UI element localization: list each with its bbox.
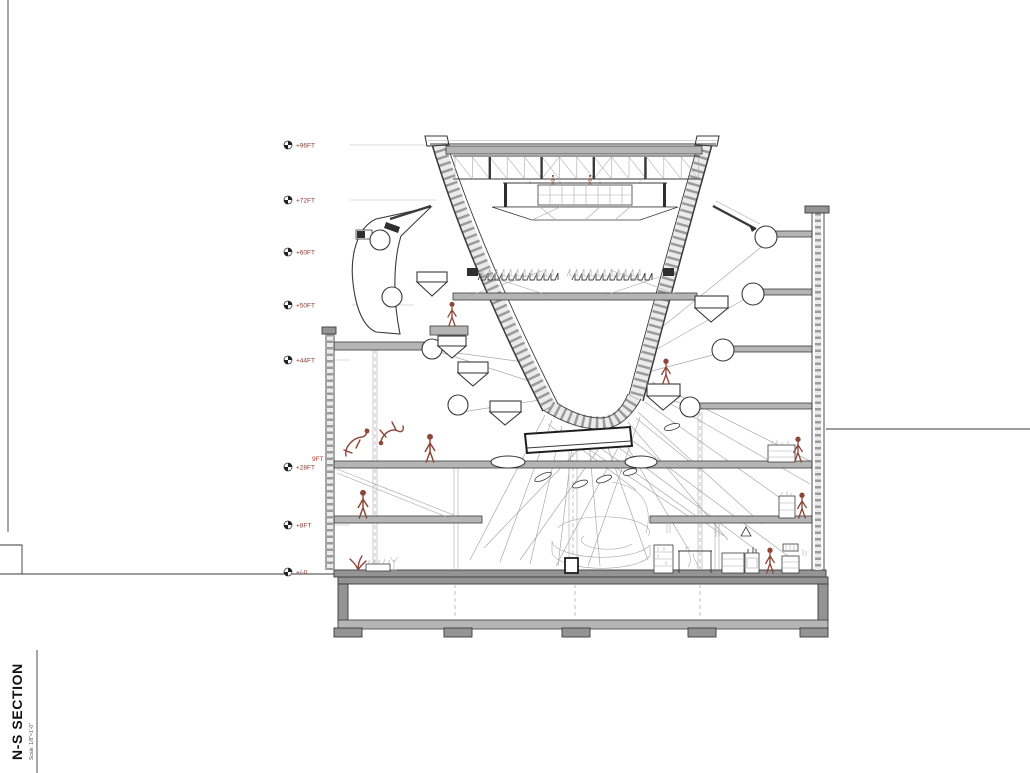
- rig-post-left: [504, 183, 507, 209]
- tilted-beam: [525, 427, 632, 453]
- columns: [373, 350, 719, 570]
- elevation-marker: +60FT: [284, 248, 315, 256]
- elevation-label: +8FT: [296, 522, 311, 529]
- elevation-marker: +44FT: [284, 356, 315, 364]
- figure-right-lower: [798, 493, 807, 518]
- elevation-label: +50FT: [296, 302, 315, 309]
- pendant-lamp: [741, 527, 751, 536]
- figure-on-rig-2: [588, 175, 591, 185]
- seating-slab: [453, 293, 697, 300]
- floor-slab-left-lower: [334, 516, 482, 523]
- figure-walking: [358, 490, 367, 518]
- elevation-marker: +96FT: [284, 141, 315, 149]
- elevation-markers: +96FT +72FT +60FT +50FT +44FT +28FT +8FT: [284, 141, 324, 576]
- figure-acrobat-1: [344, 429, 369, 456]
- shell-cap-right: [695, 136, 719, 146]
- rig-post-right: [663, 183, 666, 209]
- elevation-marker: +50FT: [284, 301, 315, 309]
- counter: [722, 553, 744, 573]
- figure-acrobat-2: [379, 422, 404, 445]
- site-lines: [0, 0, 1030, 574]
- roof-deck: [446, 146, 702, 154]
- pod-platform: [430, 326, 468, 335]
- left-wall-parapet: [322, 327, 336, 334]
- ground-floor-kitchen: [654, 517, 806, 573]
- elevation-label: +72FT: [296, 197, 315, 204]
- upper-lab-benches: [768, 440, 795, 518]
- foundation: [334, 577, 828, 637]
- figure-cook: [766, 548, 775, 573]
- plants: [350, 556, 398, 571]
- rig-canopy: [492, 207, 678, 220]
- elevation-marker: +8FT: [284, 521, 311, 529]
- elevation-label: +96FT: [296, 142, 315, 149]
- roof-truss: [428, 141, 718, 180]
- wall-rack: [783, 544, 798, 551]
- title-block: N-S SECTION Scale: 1/8"=1'-0": [9, 650, 37, 773]
- elevation-marker: +28FT: [284, 463, 315, 471]
- side-bench: [782, 556, 799, 573]
- right-wall-parapet: [805, 206, 829, 213]
- figure-on-pod-platform: [448, 302, 456, 326]
- auditorium-bowl-bottom: [543, 394, 641, 429]
- figure-on-hopper-platform: [662, 359, 671, 384]
- stair-door: [565, 558, 578, 573]
- floor-slabs: [334, 231, 812, 523]
- figure-atrium-standing: [425, 434, 434, 462]
- elevation-label: +/-0: [296, 569, 308, 576]
- drawing-sheet: +96FT +72FT +60FT +50FT +44FT +28FT +8FT: [0, 0, 1030, 773]
- elevation-marker: +72FT: [284, 196, 315, 204]
- elevation-label: +44FT: [296, 357, 315, 364]
- drawing-scale-note: Scale: 1/8"=1'-0": [29, 723, 35, 760]
- seating-end-block-left: [467, 268, 478, 276]
- floor-slab-right-3: [726, 346, 812, 352]
- elevation-label: +28FT: [296, 464, 315, 471]
- left-exterior-wall: [322, 327, 336, 570]
- drawing-title: N-S SECTION: [9, 663, 25, 760]
- wall-dimension-label: 9FT: [312, 456, 324, 463]
- right-exterior-wall: [805, 206, 829, 570]
- figure-on-rig-1: [551, 175, 554, 185]
- elevation-marker: +/-0: [284, 568, 308, 576]
- shell-cap-left: [425, 136, 449, 146]
- elevation-label: +60FT: [296, 249, 315, 256]
- spiral-stair: [552, 482, 650, 573]
- left-pod: [352, 206, 431, 334]
- left-roof-slab: [334, 342, 426, 350]
- atrium-ramp-lines: [337, 469, 456, 519]
- seating-end-block-right: [663, 268, 674, 276]
- ns-section-drawing: +96FT +72FT +60FT +50FT +44FT +28FT +8FT: [0, 0, 1030, 773]
- floor-slab-long: [334, 461, 812, 468]
- floor-slab-right-4: [694, 403, 812, 409]
- right-tie-brace: [713, 201, 760, 232]
- left-edge-structure: [0, 545, 22, 574]
- suspended-rig: [492, 175, 678, 220]
